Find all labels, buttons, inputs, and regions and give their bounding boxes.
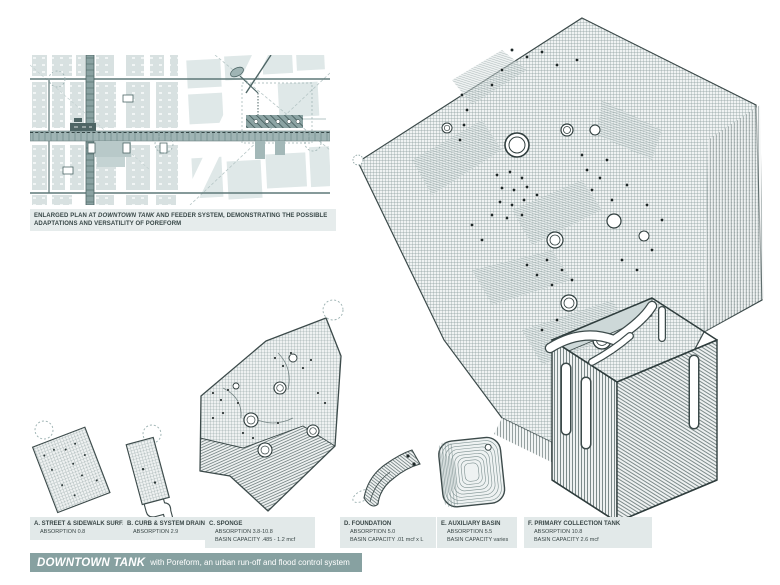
legend-capacity: BASIN CAPACITY .01 mcf x L — [344, 537, 432, 545]
legend-title: B. CURB & SYSTEM DRAIN — [127, 520, 207, 529]
legend-capacity: BASIN CAPACITY .485 - 1.2 mcf — [209, 537, 311, 545]
presentation-board: ENLARGED PLAN AT DOWNTOWN TANK AND FEEDE… — [0, 0, 780, 585]
auxiliary-basin — [437, 436, 506, 508]
legend-title: E. AUXILIARY BASIN — [441, 520, 513, 529]
legend-strip-f: F. PRIMARY COLLECTION TANK ABSORPTION 10… — [524, 517, 652, 548]
foundation-ribbon — [364, 450, 420, 506]
component-d-drawing — [350, 438, 430, 518]
component-b-drawing — [116, 420, 180, 524]
legend-title: D. FOUNDATION — [344, 520, 432, 529]
legend-absorption: ABSORPTION 3.8-10.8 — [209, 529, 311, 537]
legend-title: F. PRIMARY COLLECTION TANK — [528, 520, 648, 529]
legend-strip-d: D. FOUNDATION ABSORPTION 5.0 BASIN CAPAC… — [340, 517, 436, 548]
component-e-drawing — [435, 423, 511, 519]
legend-absorption: ABSORPTION 0.8 — [34, 529, 122, 537]
project-title-bar: DOWNTOWN TANK with Poreform, an urban ru… — [30, 553, 362, 572]
legend-strip-a: A. STREET & SIDEWALK SURFACE ABSORPTION … — [30, 517, 126, 540]
project-subtitle: with Poreform, an urban run-off and floo… — [150, 558, 350, 567]
legend-title: C. SPONGE — [209, 520, 311, 529]
component-a-drawing — [28, 418, 128, 518]
plan-caption: ENLARGED PLAN AT DOWNTOWN TANK AND FEEDE… — [30, 209, 336, 231]
enlarged-plan-drawing — [30, 55, 330, 205]
callout-circle — [35, 421, 53, 439]
caption-prefix: ENLARGED PLAN AT — [34, 213, 98, 219]
callout-circle — [323, 300, 343, 320]
legend-absorption: ABSORPTION 5.0 — [344, 529, 432, 537]
legend-strip-e: E. AUXILIARY BASIN ABSORPTION 5.5 BASIN … — [437, 517, 517, 548]
legend-absorption: ABSORPTION 10.8 — [528, 529, 648, 537]
legend-strip-c: C. SPONGE ABSORPTION 3.8-10.8 BASIN CAPA… — [205, 517, 315, 548]
component-c-drawing — [183, 298, 351, 518]
project-title: DOWNTOWN TANK — [37, 557, 145, 569]
legend-capacity: BASIN CAPACITY 2.6 mcf — [528, 537, 648, 545]
legend-capacity: BASIN CAPACITY varies — [441, 537, 513, 545]
legend-title: A. STREET & SIDEWALK SURFACE — [34, 520, 122, 529]
mesh-edge-tab — [353, 155, 363, 165]
legend-strip-b: B. CURB & SYSTEM DRAIN ABSORPTION 2.9 — [123, 517, 211, 540]
caption-emphasis: DOWNTOWN TANK — [98, 213, 154, 219]
legend-absorption: ABSORPTION 5.5 — [441, 529, 513, 537]
legend-absorption: ABSORPTION 2.9 — [127, 529, 207, 537]
